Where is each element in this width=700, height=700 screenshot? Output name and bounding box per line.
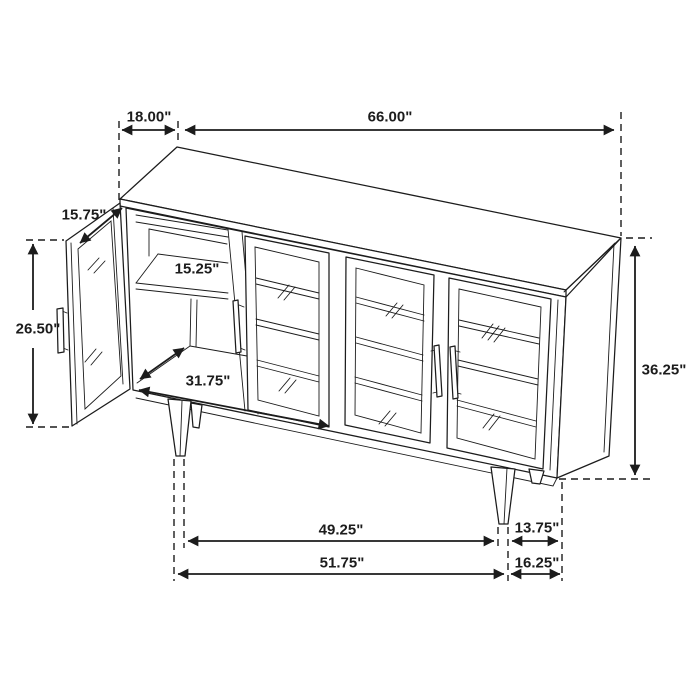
glass-door-4 — [447, 278, 558, 470]
dim-label-open-door-height: 26.50" — [16, 322, 61, 337]
dim-label-interior-width: 31.75" — [186, 374, 231, 389]
dim-label-top-width: 66.00" — [368, 110, 413, 125]
diagram-canvas: 18.00" 66.00" 15.75" 26.50" 15.25" 31.75… — [0, 0, 700, 700]
dim-label-inner-leg-span: 49.25" — [319, 523, 364, 538]
dim-label-shelf-depth: 15.25" — [175, 262, 220, 277]
front-left-leg — [168, 399, 191, 456]
back-right-leg — [529, 469, 544, 484]
dim-label-outer-leg-span: 51.75" — [320, 556, 365, 571]
glass-door-2 — [245, 236, 329, 427]
dim-label-open-door-width: 15.75" — [62, 208, 107, 223]
open-door — [57, 203, 130, 426]
back-left-leg — [191, 403, 202, 428]
dim-label-leg-corner-lower: 16.25" — [515, 556, 560, 571]
dim-label-overall-height: 36.25" — [642, 363, 687, 378]
dim-label-top-depth: 18.00" — [127, 110, 172, 125]
front-right-leg — [491, 467, 515, 524]
sideboard-line-drawing — [0, 0, 700, 700]
dim-label-leg-corner-upper: 13.75" — [515, 521, 560, 536]
glass-door-3 — [345, 257, 434, 443]
